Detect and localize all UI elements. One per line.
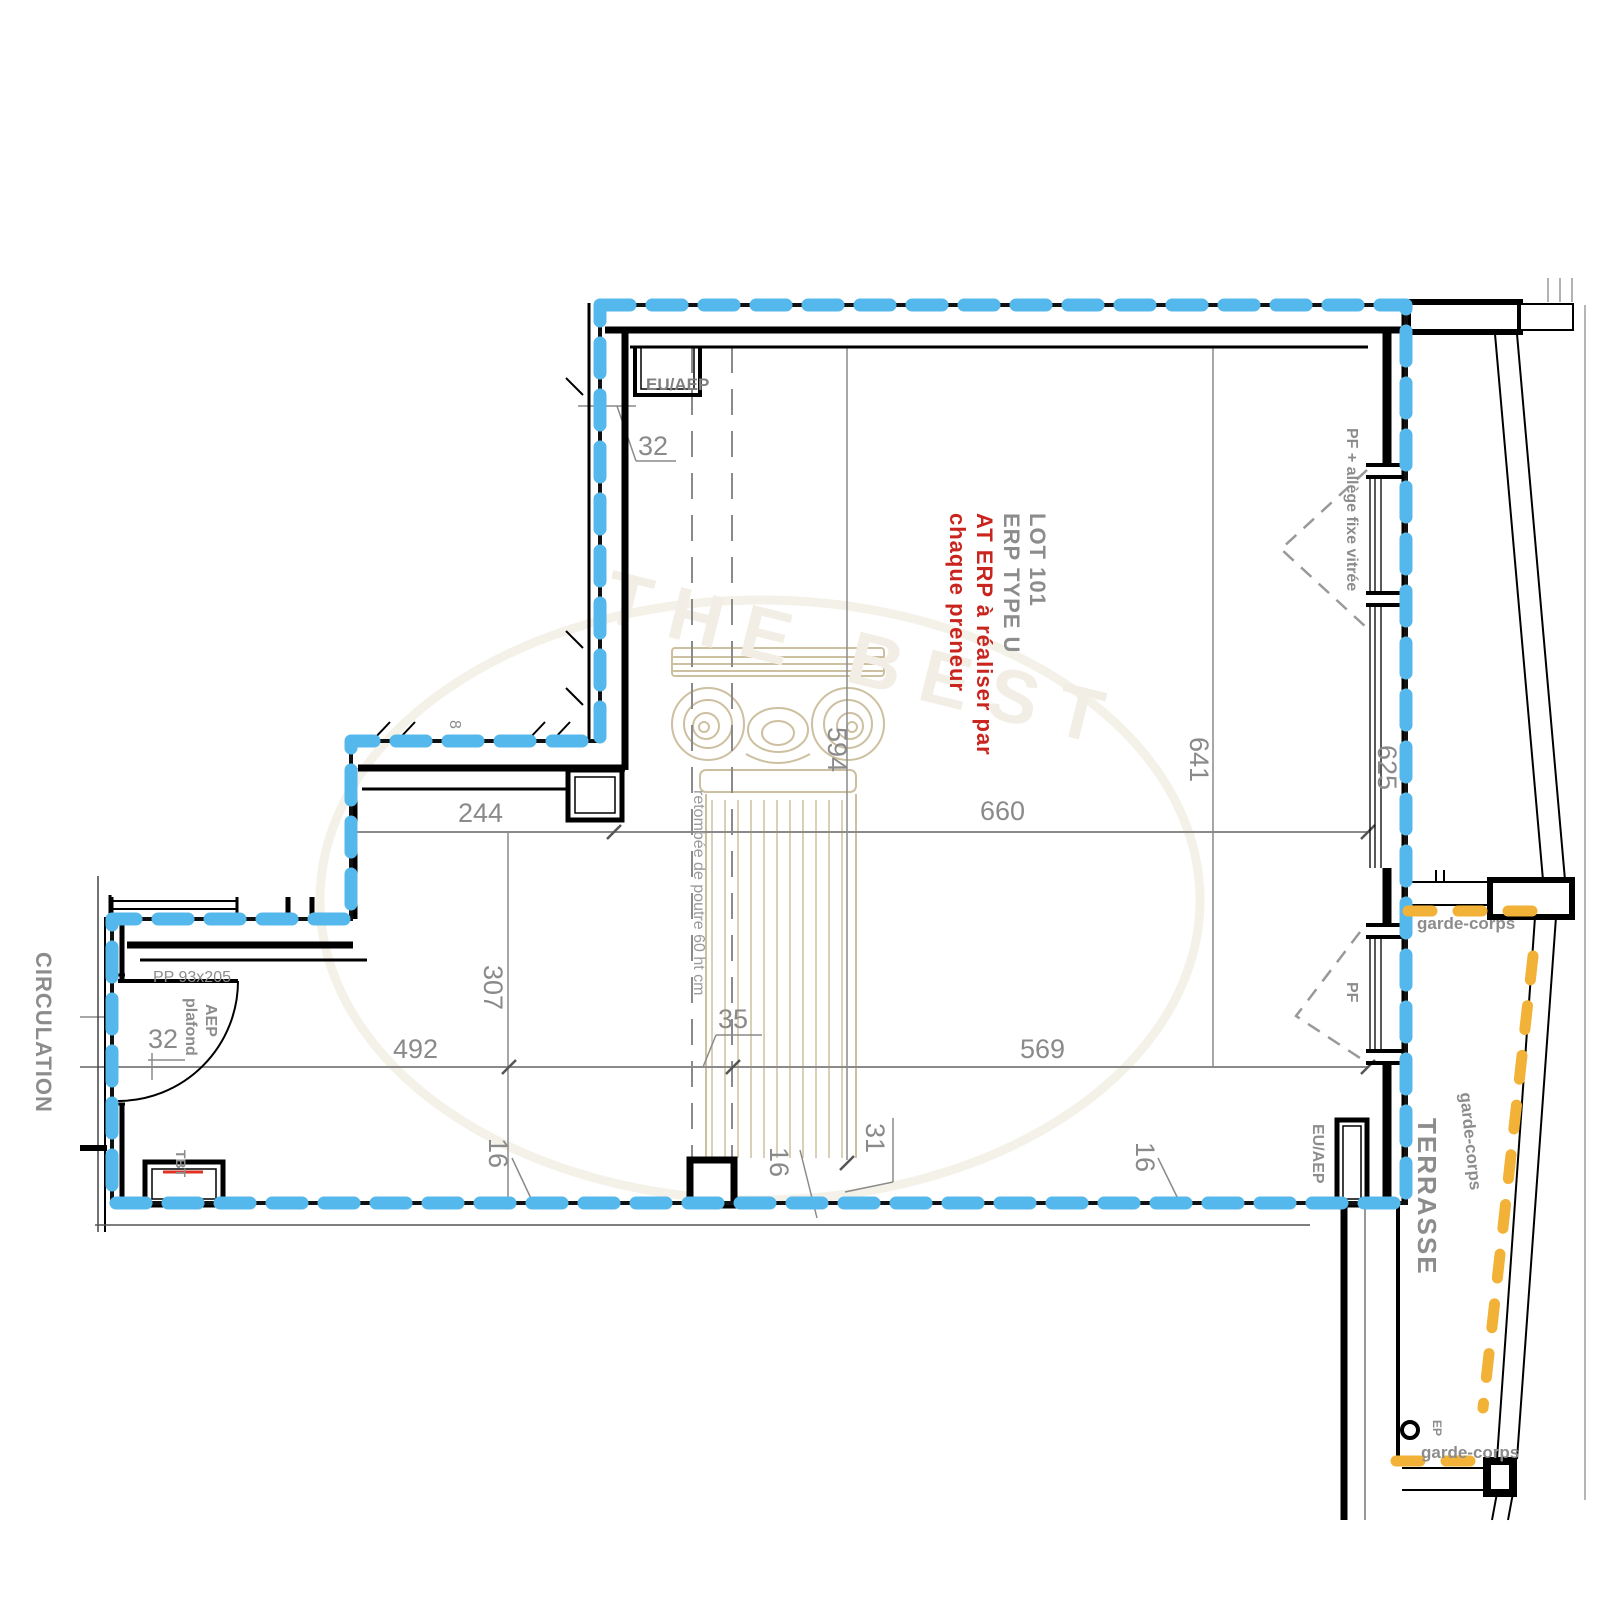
garde-corps-lower-label: garde-corps: [1421, 1443, 1519, 1462]
ep-label: EP: [1430, 1420, 1444, 1436]
tbt-label: TBT: [173, 1150, 189, 1178]
garde-corps-upper-label: garde-corps: [1417, 914, 1515, 933]
wall-hatch-ticks: [373, 378, 583, 740]
floor-plan-drawing: THE BEST: [0, 0, 1600, 1600]
dim-room-width-upper: 660: [980, 796, 1025, 826]
dim-step-width: 244: [458, 798, 503, 828]
ep-downpipe-icon: [1402, 1422, 1418, 1438]
dim-beam-width: 35: [718, 1004, 748, 1034]
dimension-texts: 32 244 660 492 569 35 32 594 641 625 307…: [148, 431, 1402, 1177]
beam-note-label: retombée de poutre 60 ht cm: [690, 790, 707, 995]
eu-aep-right-label: EU/AEP: [1309, 1124, 1326, 1184]
dim-lower-right-width: 569: [1020, 1034, 1065, 1064]
dim-step-small: 8: [446, 720, 463, 729]
dim-terrace-depth: 625: [1372, 745, 1402, 790]
pf-allege-label: PF + allège fixe vitrée: [1343, 428, 1360, 591]
dim-room-depth-right: 641: [1184, 737, 1214, 782]
lot-number-label: LOT 101: [1025, 513, 1050, 607]
garde-corps-diagonal-label: garde-corps: [1456, 1091, 1485, 1191]
dim-top-niche-offset: 32: [638, 431, 668, 461]
dim-lower-left-width: 492: [393, 1034, 438, 1064]
dim-pier-mid: 16: [764, 1147, 794, 1177]
axis-lines: [80, 347, 1375, 1218]
aep-plafond-label: plafond: [182, 998, 199, 1056]
circulation-label: CIRCULATION: [31, 952, 56, 1113]
dim-left-lower-depth: 307: [478, 965, 508, 1010]
watermark-script: THE BEST: [320, 554, 1200, 1200]
dim-beam-length: 594: [822, 727, 852, 772]
lot-note-line1: AT ERP à réaliser par: [972, 513, 997, 756]
terrasse-label: TERRASSE: [1412, 1118, 1442, 1276]
lot-type-label: ERP TYPE U: [999, 513, 1024, 653]
aep-label: AEP: [202, 1004, 219, 1037]
eu-aep-top-label: EU/AEP: [646, 375, 709, 394]
watermark-text: THE BEST: [596, 554, 1131, 764]
pf-label: PF: [1343, 982, 1360, 1003]
dim-door-offset: 32: [148, 1024, 178, 1054]
dim-pier-right: 16: [1130, 1142, 1160, 1172]
dim-pier-left: 16: [483, 1138, 513, 1168]
floor-plan-canvas: THE BEST: [0, 0, 1600, 1600]
door-label: PP 93x205: [153, 969, 231, 986]
dim-beam-axis-offset: 31: [860, 1123, 890, 1153]
lot-note-line2: chaque preneur: [945, 513, 970, 692]
